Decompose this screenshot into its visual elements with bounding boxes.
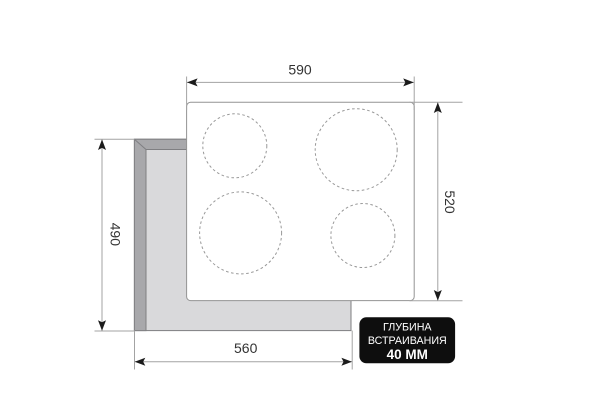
svg-text:ГЛУБИНА: ГЛУБИНА: [383, 321, 432, 333]
svg-text:490: 490: [108, 223, 124, 247]
svg-text:ВСТРАИВАНИЯ: ВСТРАИВАНИЯ: [368, 335, 447, 347]
svg-text:590: 590: [288, 61, 312, 77]
svg-text:560: 560: [234, 340, 258, 356]
svg-text:40 ММ: 40 ММ: [387, 347, 428, 362]
svg-text:520: 520: [442, 190, 458, 214]
